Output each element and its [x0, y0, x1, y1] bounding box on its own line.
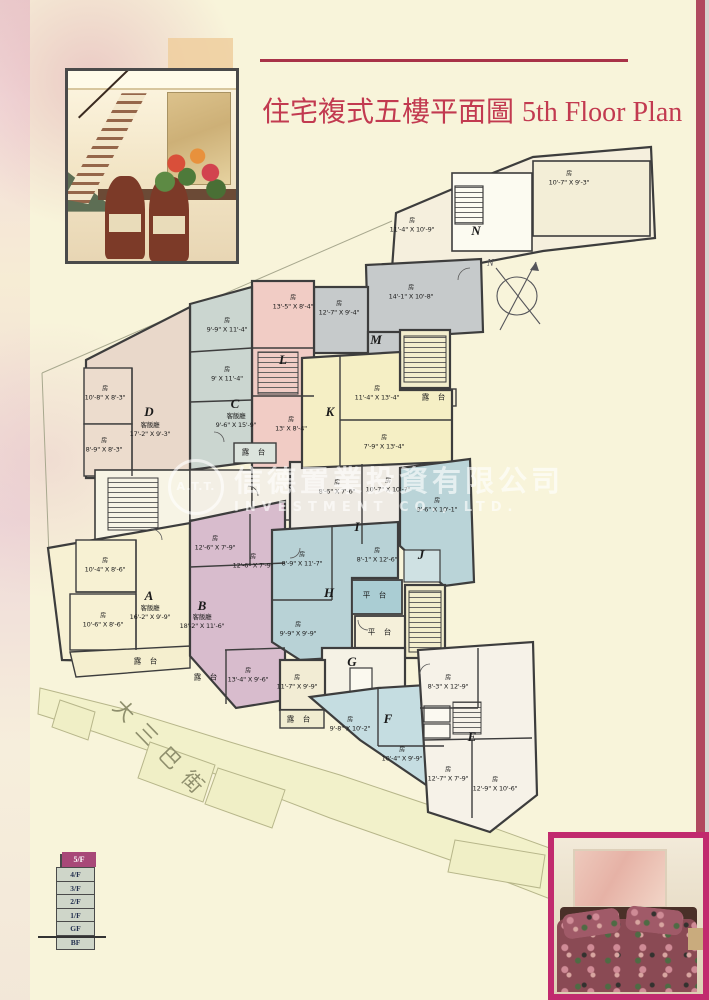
unit-letter-e: E — [468, 729, 477, 745]
unit-letter-h: H — [324, 585, 334, 601]
unit-e-bath — [424, 724, 450, 738]
side-table — [688, 928, 703, 950]
unit-letter-l: L — [279, 352, 287, 368]
room-label-k1: 房11'-4" X 13'-4" — [355, 386, 400, 403]
room-label-m1: 房14'-1" X 10'-8" — [389, 285, 434, 302]
room-label-g1: 房11'-7" X 9'-9" — [277, 675, 318, 692]
room-label-b3: 房13'-4" X 9'-6" — [228, 668, 269, 685]
terrace-label: 平 台 — [363, 590, 389, 601]
unit-letter-i: I — [354, 519, 359, 535]
bedroom-photo — [548, 832, 709, 1000]
room-label-f1: 房9'-8" X 10'-2" — [330, 717, 371, 734]
living-label-c: 客飯廳9'-6" X 15'-9" — [216, 412, 257, 430]
room-label-d1: 房10'-8" X 8'-3" — [85, 386, 126, 403]
balcony-label: 露 台 — [134, 656, 160, 667]
balcony-label: 露 台 — [242, 447, 268, 458]
room-label-i1: 房8'-6" X 7'-6" — [319, 480, 356, 497]
room-label-c1: 房9'-9" X 11'-4" — [207, 318, 248, 335]
room-label-h2: 房8'-1" X 12'-6" — [357, 548, 398, 565]
unit-letter-f: F — [384, 711, 393, 727]
unit-letter-g: G — [347, 654, 356, 670]
unit-letter-m: M — [370, 332, 382, 348]
floor-tab-5f: 5/F — [62, 852, 96, 867]
room-label-d2: 房8'-9" X 8'-3" — [86, 438, 123, 455]
balcony-label: 露 台 — [287, 714, 313, 725]
dining-chair — [105, 176, 145, 260]
room-label-b2: 房12'-6" X 7'-9" — [233, 554, 274, 571]
room-label-a1: 房10'-4" X 8'-6" — [85, 558, 126, 575]
duplex-interior-photo — [65, 68, 239, 264]
balcony-a — [70, 646, 190, 677]
terrace-label: 平 台 — [368, 627, 394, 638]
stairs — [108, 478, 158, 530]
room-label-e3: 房12'-9" X 10'-6" — [473, 777, 518, 794]
room-label-e1: 房8'-3" X 12'-9" — [428, 675, 469, 692]
room-label-i2: 房10'-7" X 10'-7" — [366, 478, 411, 495]
unit-letter-c: C — [231, 396, 240, 412]
room-label-h1: 房8'-9" X 11'-7" — [282, 552, 323, 569]
room-label-l1: 房13'-5" X 8'-4" — [273, 295, 314, 312]
unit-letter-a: A — [145, 588, 154, 604]
room-label-c2: 房9' X 11'-4" — [211, 367, 243, 384]
room-label-k2: 房7'-9" X 13'-4" — [364, 435, 405, 452]
room-label-m2: 房12'-7" X 9'-4" — [319, 301, 360, 318]
brochure-page: 住宅複式五樓平面圖5th Floor Plan — [0, 0, 709, 1000]
stairs — [409, 591, 441, 652]
compass-north-label: N — [487, 258, 494, 269]
unit-m-room2 — [314, 287, 368, 353]
unit-letter-j: J — [418, 547, 425, 563]
compass-icon — [496, 262, 540, 330]
balcony-label: 露 台 — [422, 392, 448, 403]
pink-painting — [573, 849, 666, 908]
room-label-n2: 房10'-7" X 9'-3" — [549, 171, 590, 188]
room-label-b1: 房12'-6" X 7'-9" — [195, 536, 236, 553]
ground-line — [38, 936, 106, 938]
room-label-j1: 房9'-6" X 10'-1" — [417, 498, 458, 515]
stairs — [258, 352, 298, 394]
unit-letter-d: D — [144, 404, 153, 420]
unit-letter-k: K — [326, 404, 335, 420]
room-label-e2: 房12'-7" X 7'-9" — [428, 767, 469, 784]
unit-letter-n: N — [471, 223, 480, 239]
room-label-f2: 房10'-4" X 9'-9" — [382, 747, 423, 764]
living-label-d: 客飯廳17'-2" X 9'-3" — [130, 421, 171, 439]
photo-ceiling — [68, 71, 236, 90]
room-label-l2: 房13' X 8'-4" — [275, 417, 307, 434]
stairs — [404, 336, 446, 382]
room-label-a2: 房10'-6" X 8'-6" — [83, 613, 124, 630]
living-label-b: 客飯廳18'-2" X 11'-6" — [180, 613, 225, 631]
flower-arrangement — [155, 139, 226, 200]
room-label-h3: 房9'-9" X 9'-9" — [280, 622, 317, 639]
balcony-label: 露 台 — [194, 672, 220, 683]
unit-letter-b: B — [198, 598, 207, 614]
room-label-n1: 房11'-4" X 10'-9" — [390, 218, 435, 235]
living-label-a: 客飯廳16'-2" X 9'-9" — [130, 604, 171, 622]
stairs — [455, 186, 483, 224]
